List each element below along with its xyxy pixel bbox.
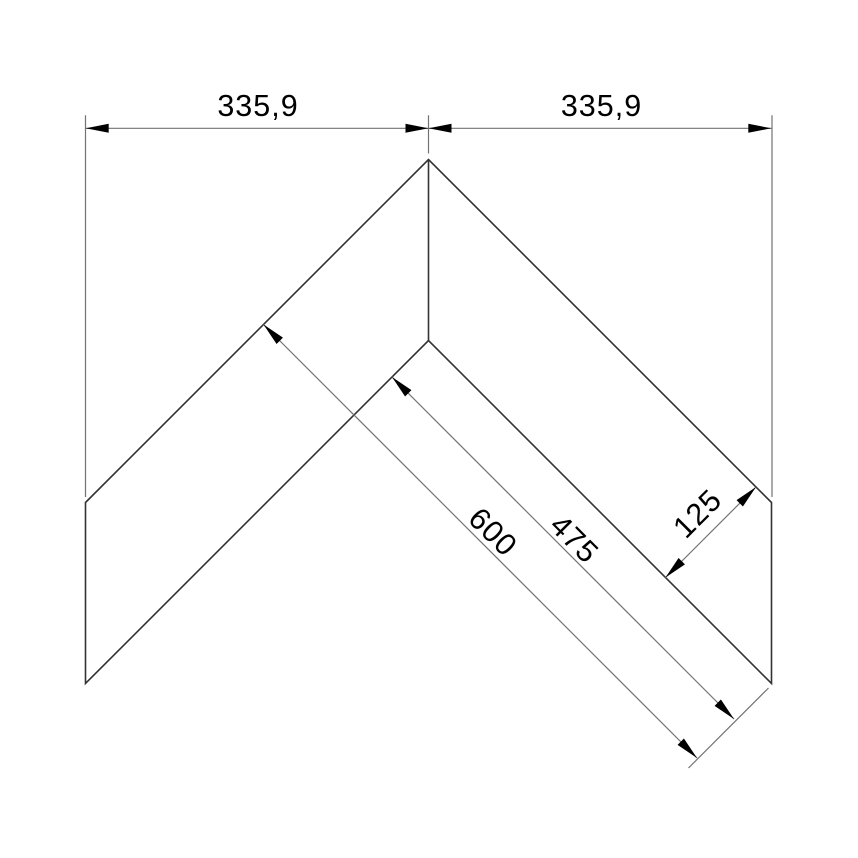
- svg-text:475: 475: [543, 508, 605, 570]
- svg-text:125: 125: [667, 483, 729, 545]
- svg-text:600: 600: [462, 501, 524, 563]
- svg-text:335,9: 335,9: [561, 89, 642, 123]
- svg-text:335,9: 335,9: [217, 89, 298, 123]
